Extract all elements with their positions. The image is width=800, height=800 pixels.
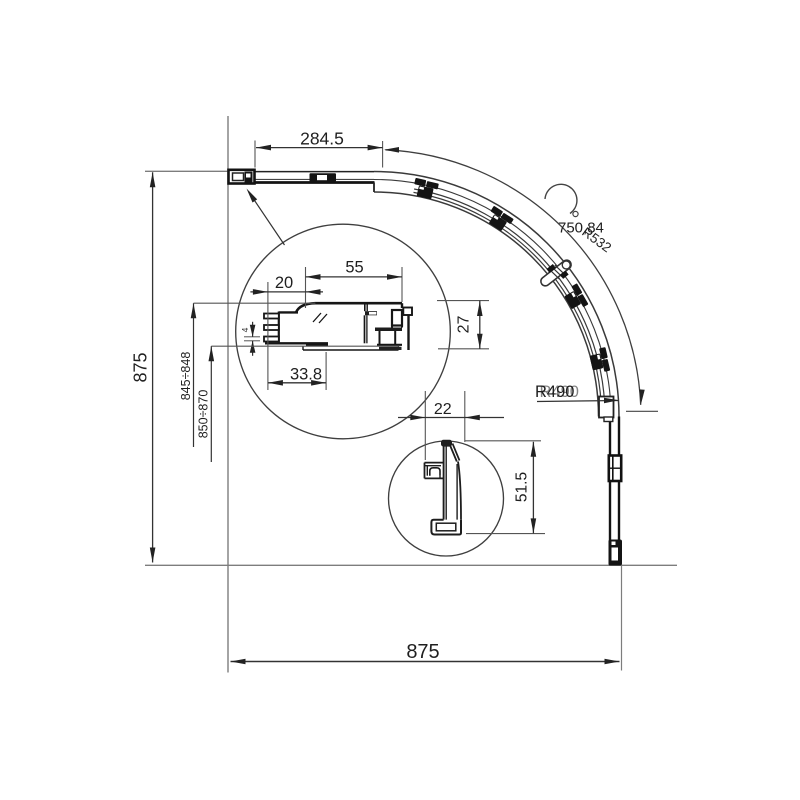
- svg-text:284.5: 284.5: [300, 129, 344, 149]
- svg-text:R490: R490: [540, 383, 579, 401]
- svg-text:22: 22: [434, 401, 452, 418]
- svg-text:875: 875: [406, 641, 439, 663]
- svg-text:850÷870: 850÷870: [197, 390, 211, 439]
- svg-text:20: 20: [275, 274, 293, 292]
- svg-text:845÷848: 845÷848: [179, 352, 193, 401]
- svg-text:33.8: 33.8: [290, 366, 322, 384]
- svg-text:27: 27: [456, 316, 473, 334]
- svg-text:55: 55: [345, 259, 363, 277]
- svg-text:51.5: 51.5: [514, 472, 531, 502]
- svg-text:875: 875: [131, 352, 151, 382]
- svg-text:4: 4: [240, 327, 250, 332]
